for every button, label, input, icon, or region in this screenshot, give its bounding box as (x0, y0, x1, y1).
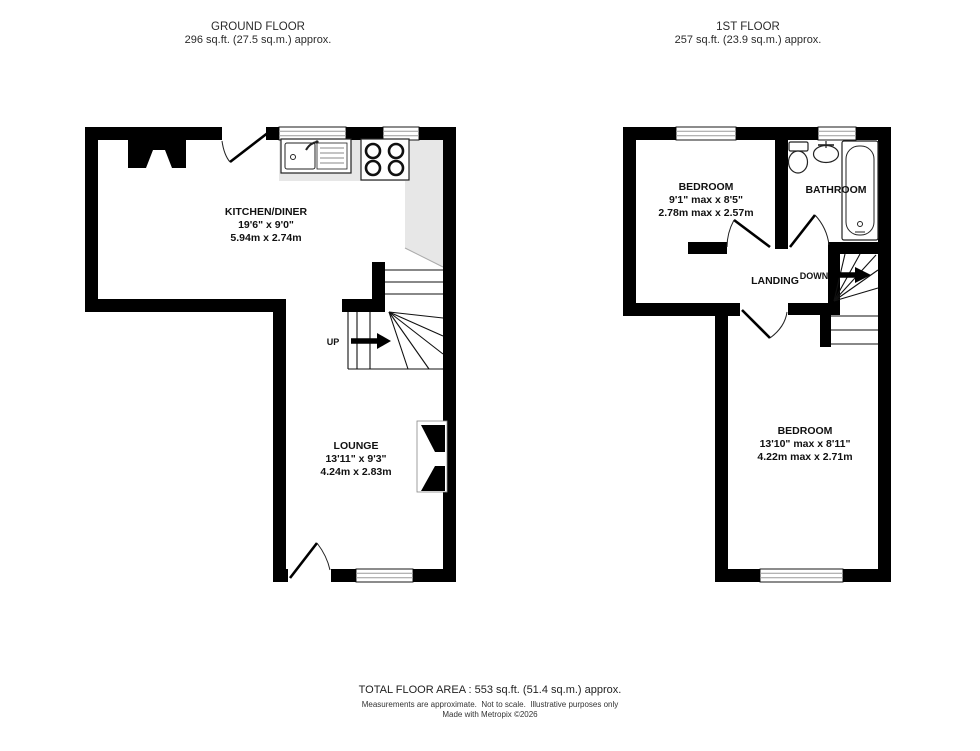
lounge-chimney-breast (417, 421, 447, 492)
kitchen-diner-dims-imperial: 19'6" x 9'0" (238, 219, 294, 231)
kitchen-diner-dims-metric: 5.94m x 2.74m (230, 232, 301, 244)
kitchen-chimney-breast (128, 140, 186, 168)
bedroom-back-dims-imperial: 13'10" max x 8'11" (760, 438, 851, 450)
ground-floor-plan: KITCHEN/DINER 19'6" x 9'0" 5.94m x 2.74m… (85, 127, 456, 582)
floorplan-svg: KITCHEN/DINER 19'6" x 9'0" 5.94m x 2.74m… (0, 0, 980, 751)
stove-icon (361, 139, 409, 180)
bedroom-front-label: BEDROOM (679, 181, 734, 193)
window (279, 127, 346, 140)
bathroom-door (790, 215, 829, 247)
bedroom-front-door (727, 220, 770, 247)
window (356, 569, 413, 582)
bathroom-sink-icon (814, 141, 839, 163)
bathroom-label: BATHROOM (805, 184, 866, 196)
lounge-dims-imperial: 13'11" x 9'3" (325, 453, 386, 465)
down-label: DOWN (800, 271, 829, 281)
floorplan-canvas: GROUND FLOOR 296 sq.ft. (27.5 sq.m.) app… (0, 0, 980, 751)
bedroom-back-label: BEDROOM (778, 425, 833, 437)
ground-windows (279, 127, 419, 582)
landing-label: LANDING (751, 275, 799, 287)
credit-text: Made with Metropix ©2026 (240, 710, 740, 720)
lounge-dims-metric: 4.24m x 2.83m (320, 466, 391, 478)
ground-walls (85, 127, 456, 582)
lounge-label: LOUNGE (334, 440, 379, 452)
window (383, 127, 419, 140)
toilet-icon (789, 142, 809, 173)
front-door (290, 543, 330, 578)
bedroom-front-dims-metric: 2.78m max x 2.57m (658, 207, 753, 219)
ground-stairs (348, 270, 443, 369)
up-label: UP (327, 337, 340, 347)
window (760, 569, 843, 582)
bedroom-front-dims-imperial: 9'1" max x 8'5" (669, 194, 743, 206)
window (818, 127, 856, 140)
bedroom-back-door (742, 310, 787, 338)
kitchen-entry-door (222, 132, 269, 162)
total-floor-area: TOTAL FLOOR AREA : 553 sq.ft. (51.4 sq.m… (240, 684, 740, 697)
kitchen-diner-label: KITCHEN/DINER (225, 206, 308, 218)
footer: TOTAL FLOOR AREA : 553 sq.ft. (51.4 sq.m… (240, 684, 740, 719)
disclaimer-text: Measurements are approximate. Not to sca… (240, 700, 740, 710)
kitchen-sink-icon (281, 139, 351, 173)
first-floor-plan: BEDROOM 9'1" max x 8'5" 2.78m max x 2.57… (623, 127, 891, 582)
bedroom-back-dims-metric: 4.22m max x 2.71m (757, 451, 852, 463)
window (676, 127, 736, 140)
